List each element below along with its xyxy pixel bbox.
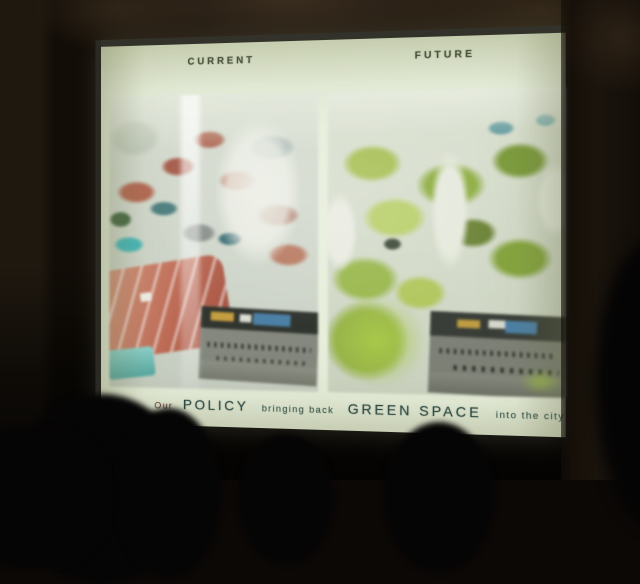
tree-canopy-shape — [517, 368, 566, 396]
audience-head-silhouette — [116, 408, 221, 578]
current-label: CURRENT — [169, 54, 275, 68]
current-city-photo — [109, 92, 318, 392]
caption-phrase-into-the-city: into the city — [496, 410, 565, 423]
audience-head-silhouette — [384, 422, 494, 572]
future-label: FUTURE — [399, 48, 492, 62]
cyan-rooftop-shape — [109, 346, 156, 380]
projector-glare-strip — [181, 92, 200, 392]
audience-head-silhouette — [0, 428, 110, 568]
projector-slide: CURRENT FUTURE Our POLICY bringing back … — [101, 33, 566, 438]
street-scene-current — [198, 306, 318, 386]
caption-phrase-bringing-back: bringing back — [262, 403, 335, 416]
tree-canopy-shape — [328, 288, 433, 395]
screen-left-bezel — [95, 40, 101, 423]
slide-caption: Our POLICY bringing back GREEN SPACE int… — [148, 395, 534, 424]
audience-head-silhouette — [238, 434, 333, 564]
future-green-city-photo — [328, 87, 566, 398]
caption-phrase-green-space: GREEN SPACE — [348, 401, 482, 421]
caption-word-policy: POLICY — [183, 396, 249, 413]
